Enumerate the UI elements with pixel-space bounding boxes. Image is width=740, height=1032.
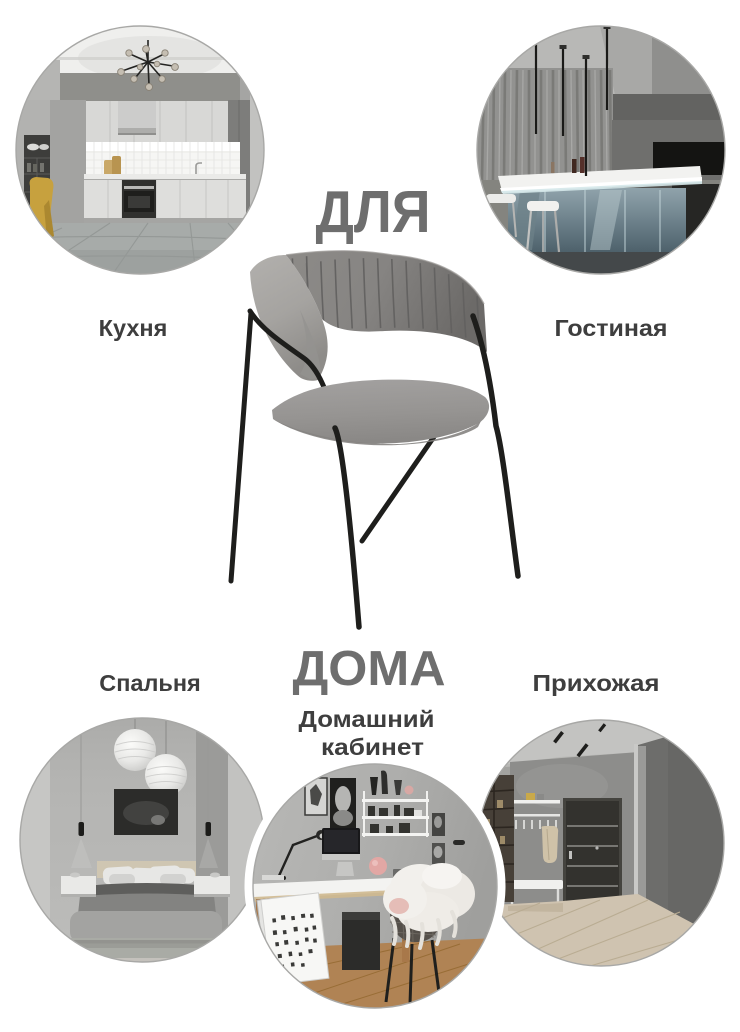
svg-text:Гостиная: Гостиная (555, 315, 668, 341)
svg-text:Кухня: Кухня (99, 315, 168, 341)
svg-text:Прихожая: Прихожая (533, 670, 660, 696)
svg-text:Спальня: Спальня (99, 670, 201, 696)
svg-text:ДОМА: ДОМА (293, 641, 446, 696)
svg-text:Домашний: Домашний (299, 706, 435, 732)
svg-text:ДЛЯ: ДЛЯ (316, 179, 431, 245)
